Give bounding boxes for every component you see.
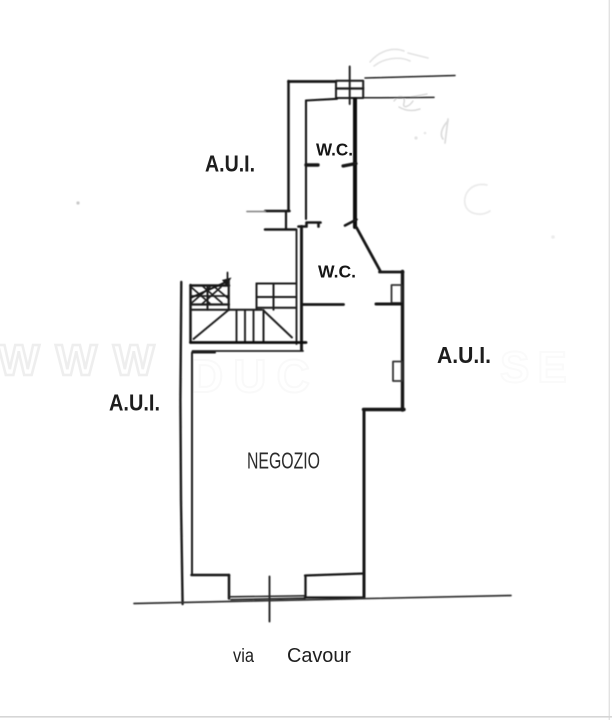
svg-text:Cavour: Cavour: [287, 645, 351, 667]
svg-text:A.U.I.: A.U.I.: [109, 390, 160, 416]
svg-text:DUC: DUC: [190, 350, 320, 402]
svg-text:A.U.I.: A.U.I.: [205, 151, 255, 177]
svg-text:WWW: WWW: [0, 336, 171, 385]
svg-text:A.U.I.: A.U.I.: [437, 342, 491, 368]
svg-text:SE: SE: [500, 343, 575, 392]
svg-text:via: via: [233, 646, 254, 667]
svg-text:W.C.: W.C.: [318, 262, 356, 282]
svg-text:W.C.: W.C.: [316, 140, 353, 160]
svg-text:NEGOZIO: NEGOZIO: [247, 448, 320, 474]
